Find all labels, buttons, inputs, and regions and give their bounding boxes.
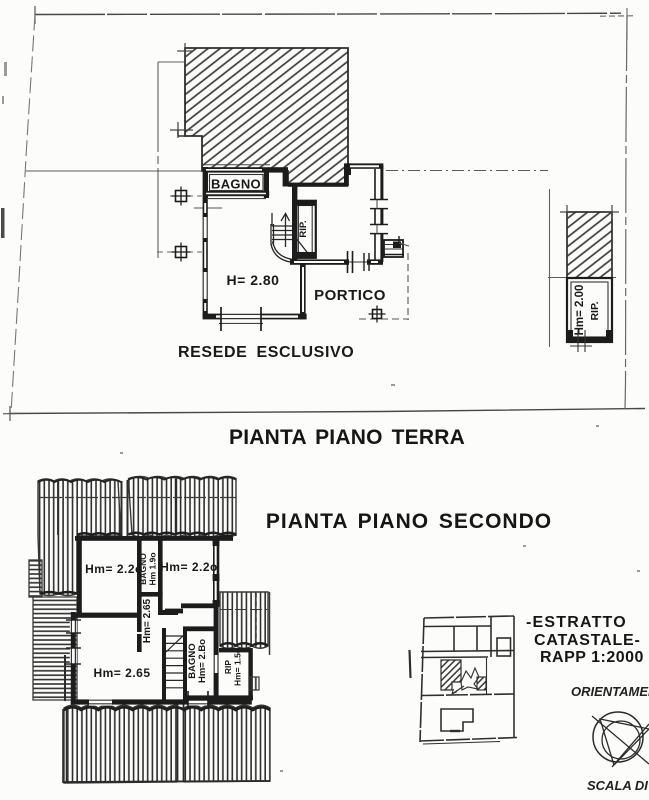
svg-text:RESEDE ESCLUSIVO: RESEDE ESCLUSIVO (178, 344, 354, 361)
svg-text:SCALA DI 1:: SCALA DI 1: (587, 778, 649, 793)
svg-text:Hm 1.9o: Hm 1.9o (148, 552, 158, 585)
svg-text:PORTICO: PORTICO (314, 287, 386, 304)
svg-text:RIP.: RIP. (589, 301, 601, 320)
svg-text:BAGNO: BAGNO (138, 553, 148, 585)
svg-text:PIANTA PIANO TERRA: PIANTA PIANO TERRA (229, 426, 465, 449)
svg-text:H= 2.80: H= 2.80 (227, 272, 280, 288)
svg-text:Hm= 2.00: Hm= 2.00 (574, 285, 586, 336)
svg-text:ORIENTAMEN: ORIENTAMEN (571, 684, 649, 699)
svg-text:Hm= 2.2o: Hm= 2.2o (160, 560, 218, 574)
svg-text:RIP: RIP (223, 660, 233, 675)
svg-text:Hm= 2.65: Hm= 2.65 (142, 598, 153, 643)
svg-text:Hm= 1.5o: Hm= 1.5o (233, 648, 243, 686)
svg-text:RIP.: RIP. (298, 220, 309, 237)
svg-text:RAPP 1:2000: RAPP 1:2000 (540, 649, 644, 666)
svg-text:Hm= 2.2o: Hm= 2.2o (85, 562, 143, 576)
svg-text:-ESTRATTO: -ESTRATTO (526, 614, 627, 631)
svg-text:PIANTA PIANO SECONDO: PIANTA PIANO SECONDO (266, 510, 552, 533)
svg-text:Hm= 2.65: Hm= 2.65 (93, 666, 150, 680)
svg-text:Hm= 2.Bo: Hm= 2.Bo (197, 639, 208, 683)
svg-text:CATASTALE-: CATASTALE- (534, 632, 641, 649)
svg-text:BAGNO: BAGNO (211, 177, 261, 192)
